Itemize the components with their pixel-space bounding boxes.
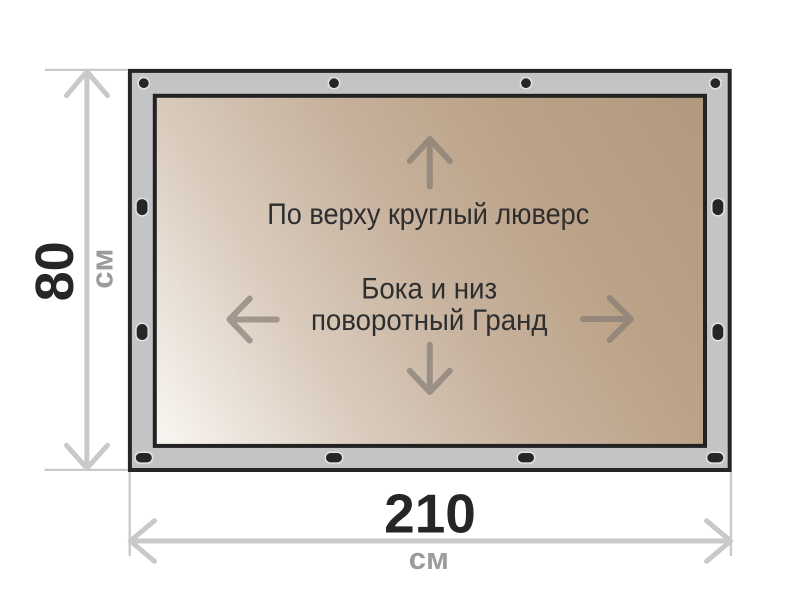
svg-text:см: см [409, 541, 449, 576]
svg-text:80: 80 [25, 241, 85, 301]
svg-text:По верху круглый люверс: По верху круглый люверс [267, 198, 589, 231]
svg-text:210: 210 [384, 483, 476, 545]
svg-text:поворотный Гранд: поворотный Гранд [311, 304, 548, 337]
svg-text:Бока и низ: Бока и низ [361, 273, 497, 306]
svg-text:см: см [85, 249, 120, 289]
